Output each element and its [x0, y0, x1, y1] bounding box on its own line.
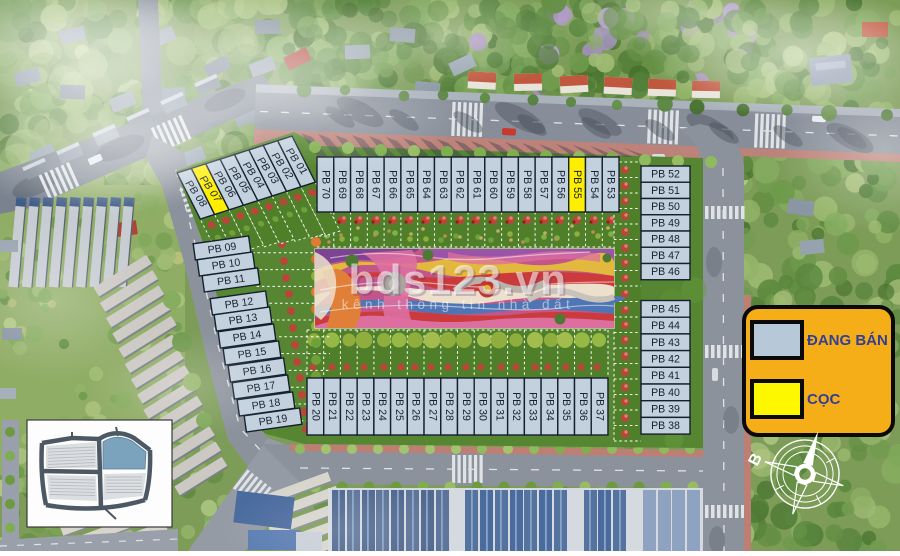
- svg-text:PB 22: PB 22: [343, 392, 355, 421]
- svg-text:PB 69: PB 69: [336, 170, 348, 199]
- svg-text:PB 43: PB 43: [651, 337, 680, 349]
- svg-text:ĐANG BÁN: ĐANG BÁN: [807, 332, 888, 349]
- svg-text:PB 46: PB 46: [651, 266, 680, 278]
- svg-text:PB 25: PB 25: [393, 392, 405, 421]
- svg-text:PB 66: PB 66: [387, 170, 399, 199]
- svg-text:PB 23: PB 23: [360, 392, 372, 421]
- svg-text:PB 30: PB 30: [477, 392, 489, 421]
- svg-text:PB 57: PB 57: [538, 170, 550, 199]
- svg-text:PB 29: PB 29: [460, 392, 472, 421]
- svg-text:PB 41: PB 41: [651, 370, 680, 382]
- svg-text:PB 58: PB 58: [521, 170, 533, 199]
- svg-text:PB 45: PB 45: [651, 303, 680, 315]
- svg-text:PB 26: PB 26: [410, 392, 422, 421]
- svg-text:PB 70: PB 70: [319, 170, 331, 199]
- svg-text:PB 34: PB 34: [543, 392, 555, 421]
- svg-text:PB 64: PB 64: [420, 170, 432, 199]
- svg-text:PB 31: PB 31: [493, 392, 505, 421]
- svg-text:PB 47: PB 47: [651, 250, 680, 262]
- svg-text:PB 65: PB 65: [403, 170, 415, 199]
- svg-text:PB 24: PB 24: [376, 392, 388, 421]
- svg-text:PB 49: PB 49: [651, 217, 680, 229]
- svg-text:PB 20: PB 20: [309, 392, 321, 421]
- svg-text:PB 33: PB 33: [527, 392, 539, 421]
- svg-text:PB 59: PB 59: [504, 170, 516, 199]
- svg-text:kênh thông tin nhà đất: kênh thông tin nhà đất: [342, 297, 575, 312]
- svg-text:CỌC: CỌC: [807, 391, 841, 408]
- svg-text:PB 28: PB 28: [443, 392, 455, 421]
- svg-text:PB 61: PB 61: [470, 170, 482, 199]
- svg-text:PB 48: PB 48: [651, 234, 680, 246]
- svg-text:PB 54: PB 54: [588, 170, 600, 199]
- svg-text:PB 63: PB 63: [437, 170, 449, 199]
- svg-text:PB 56: PB 56: [554, 170, 566, 199]
- svg-text:PB 50: PB 50: [651, 201, 680, 213]
- svg-text:PB 60: PB 60: [487, 170, 499, 199]
- svg-text:PB 52: PB 52: [651, 169, 680, 181]
- svg-text:PB 68: PB 68: [353, 170, 365, 199]
- svg-text:PB 44: PB 44: [651, 320, 680, 332]
- svg-text:PB 51: PB 51: [651, 185, 680, 197]
- svg-text:PB 40: PB 40: [651, 387, 680, 399]
- svg-text:PB 27: PB 27: [426, 392, 438, 421]
- svg-text:PB 55: PB 55: [571, 170, 583, 199]
- svg-text:PB 37: PB 37: [594, 392, 606, 421]
- svg-text:PB 62: PB 62: [454, 170, 466, 199]
- svg-text:bds123.vn: bds123.vn: [349, 256, 568, 303]
- svg-text:PB 42: PB 42: [651, 354, 680, 366]
- svg-text:PB 67: PB 67: [370, 170, 382, 199]
- svg-text:PB 38: PB 38: [651, 420, 680, 432]
- svg-text:PB 35: PB 35: [560, 392, 572, 421]
- svg-text:PB 36: PB 36: [577, 392, 589, 421]
- svg-text:PB 53: PB 53: [605, 170, 617, 199]
- svg-text:PB 39: PB 39: [651, 404, 680, 416]
- svg-text:PB 21: PB 21: [326, 392, 338, 421]
- svg-text:PB 32: PB 32: [510, 392, 522, 421]
